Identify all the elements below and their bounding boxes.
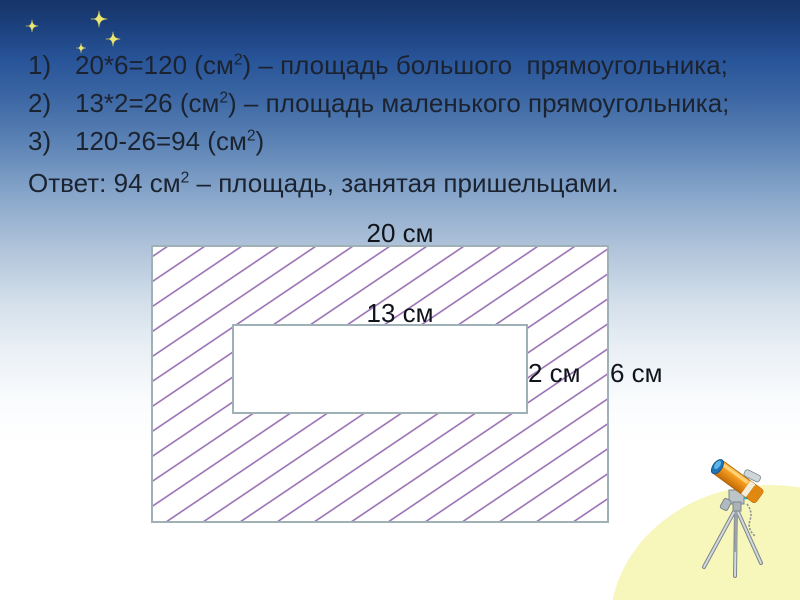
step-number: 1) [28,46,75,84]
step-number: 2) [28,84,75,122]
solution-step-1: 1) 20*6=120 (см2) – площадь большого пря… [28,46,729,84]
superscript-exponent: 2 [181,169,190,186]
label-outer-width: 20 см [340,220,460,246]
step-number: 3) [28,122,75,160]
star-icon [106,32,120,46]
answer-line: Ответ: 94 см2 – площадь, занятая пришель… [28,164,729,202]
step-text-post: ) – площадь маленького прямоугольника; [228,88,729,118]
star-icon [26,20,38,32]
slide: 1) 20*6=120 (см2) – площадь большого пря… [0,0,800,600]
solution-steps: 1) 20*6=120 (см2) – площадь большого пря… [28,46,729,202]
inner-rectangle [233,325,527,413]
label-outer-height: 6 см [610,360,663,386]
step-text-post: ) – площадь большого прямоугольника; [243,50,728,80]
step-text-post: ) [256,126,265,156]
step-text-pre: 120-26=94 (см [75,126,247,156]
step-text-pre: 20*6=120 (см [75,50,234,80]
step-text: 120-26=94 (см2) [75,122,264,160]
label-inner-width: 13 см [340,300,460,326]
step-text: 20*6=120 (см2) – площадь большого прямоу… [75,46,728,84]
superscript-exponent: 2 [219,89,228,106]
step-text-pre: 13*2=26 (см [75,88,219,118]
answer-text-post: – площадь, занятая пришельцами. [189,168,618,198]
label-inner-height: 2 см [528,360,581,386]
superscript-exponent: 2 [234,51,243,68]
solution-step-3: 3) 120-26=94 (см2) [28,122,729,160]
answer-text-pre: Ответ: 94 см [28,168,181,198]
telescope-icon [690,440,800,585]
step-text: 13*2=26 (см2) – площадь маленького прямо… [75,84,729,122]
solution-step-2: 2) 13*2=26 (см2) – площадь маленького пр… [28,84,729,122]
star-icon [91,11,107,27]
superscript-exponent: 2 [247,127,256,144]
